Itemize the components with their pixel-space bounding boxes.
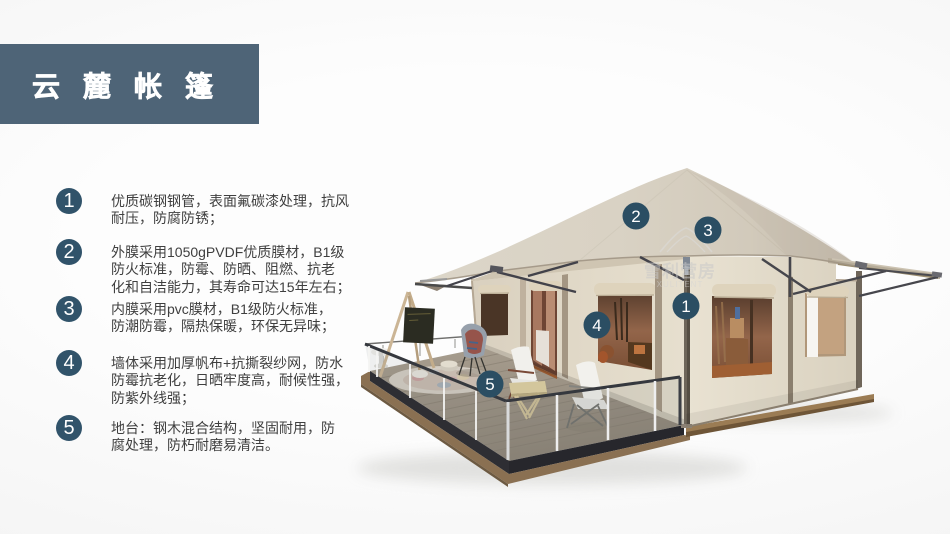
svg-text:XULITENT: XULITENT [657,280,704,289]
svg-text:5: 5 [485,375,494,394]
svg-text:4: 4 [592,316,601,335]
svg-text:3: 3 [703,221,712,240]
svg-text:雪利营房: 雪利营房 [644,261,716,281]
svg-text:1: 1 [681,297,690,316]
svg-text:2: 2 [631,207,640,226]
